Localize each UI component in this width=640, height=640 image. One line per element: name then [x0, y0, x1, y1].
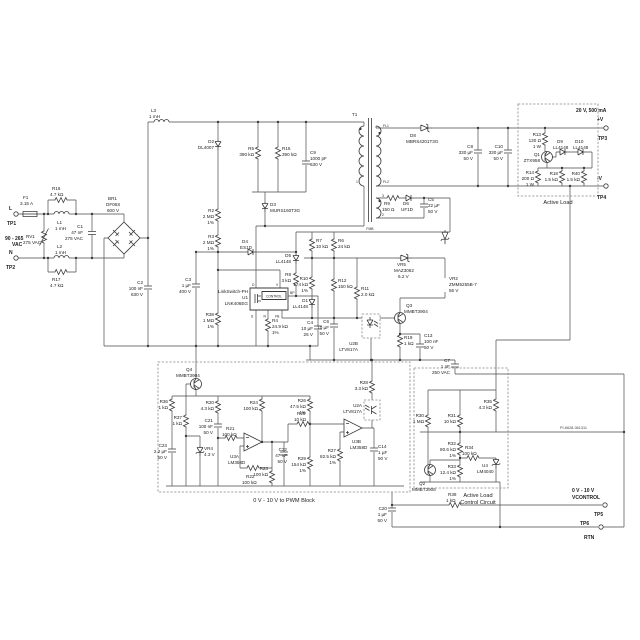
label-d10-ref: D10 [575, 139, 584, 144]
label-c22-v1: 47 nF [275, 453, 287, 458]
label-r17-v1: 4.7 kΩ [50, 283, 64, 288]
label-r14-ref: R14 [526, 170, 535, 175]
label-q3-ref: Q3 [406, 303, 413, 308]
label-c21-v1: 100 nF [199, 424, 213, 429]
label-d1-ref: D1 [302, 298, 308, 303]
label-u3b-v1: LM358D [350, 445, 368, 450]
label-line: L [9, 206, 12, 212]
label-r24-ref: R24 [250, 400, 259, 405]
label-c21-ref: C21 [205, 418, 214, 423]
label-r16-ref: R16 [52, 186, 61, 191]
label-d6-ref: D6 [403, 201, 409, 206]
label-r23-v1: 100 kΩ [253, 472, 268, 477]
label-c20-v1: 1 µF [378, 512, 387, 517]
label-c4-ref: C4 [307, 320, 313, 325]
label-d5-v1: LL4148 [276, 259, 292, 264]
label-d5-ref: D5 [285, 253, 291, 258]
label-active-load: Active Load [543, 200, 572, 206]
testpoint-tp4 [604, 184, 608, 188]
label-u3a-ref: U3A [230, 454, 240, 459]
label-r36-v1: 1 kΩ [158, 405, 168, 410]
label-r17-ref: R17 [52, 277, 61, 282]
label-r40-ref: R40 [572, 171, 581, 176]
label-q4-v1: MMBT3904 [176, 373, 200, 378]
label-c2-v2: 630 V [131, 292, 144, 297]
label-u1-control: CONTROL [266, 295, 282, 299]
label-r2-v1: 2 MΩ [203, 214, 215, 219]
label-r32-v1: 80.6 kΩ [440, 447, 457, 452]
label-vr4-ref: VR4 [204, 446, 213, 451]
label-l3-v1: 1 mH [149, 114, 160, 119]
label-c20-ref: C20 [379, 506, 388, 511]
label-r2-v2: 1% [207, 220, 214, 225]
label-r20-ref: R20 [206, 400, 215, 405]
label-u2a-v1: LTV817A [343, 409, 363, 414]
label-c1-ref: C1 [77, 224, 83, 229]
label-neutral: N [9, 250, 13, 256]
label-l2-v1: 1 mH [55, 250, 66, 255]
label-d8-ref: D8 [410, 133, 416, 138]
label-c10-ref: C10 [495, 144, 504, 149]
label-c1-v1: 47 nF [71, 230, 83, 235]
label-u1-brand: LinkSwitch-PH [218, 289, 248, 294]
label-c8-v1: 330 µF [459, 150, 474, 155]
label-r8-ref: R8 [285, 272, 291, 277]
label-c8-ref: C8 [467, 144, 473, 149]
label-u3b-ref: U3B [352, 439, 361, 444]
label-r25-v1: 10 kΩ [294, 417, 307, 422]
label-r22-v1: 100 kΩ [242, 480, 257, 485]
label-u4-v1: LM4040 [477, 469, 494, 474]
label-r26-v1: 47.5 kΩ [290, 404, 307, 409]
label-r14-v2: 1 W [526, 182, 535, 187]
label-d2-ref: D2 [208, 139, 214, 144]
label-doc-number: PI-6628-061311 [560, 426, 587, 430]
label-c23-v1: 2.2 µF [154, 449, 167, 454]
label-c5-v1: 22 µF [428, 203, 440, 208]
testpoint-tp6 [599, 525, 603, 529]
label-t1-fmb: FMB [366, 227, 374, 231]
label-tp4: TP4 [597, 195, 606, 201]
label-r26-ref: R26 [298, 398, 307, 403]
label-r21-v1: 100 kΩ [222, 432, 237, 437]
label-r29-v2: 1% [299, 468, 306, 473]
label-r27-v2: 1% [329, 460, 336, 465]
label-c14-v1: 1 µF [378, 450, 387, 455]
label-l3-ref: L3 [151, 108, 157, 113]
label-c22-v2: 50 V [278, 459, 288, 464]
label-r32-v2: 1% [449, 453, 456, 458]
label-q1-v1: ZTX958 [524, 158, 541, 163]
label-r7-ref: R7 [316, 238, 322, 243]
label-r36-ref: R36 [160, 399, 169, 404]
label-c20-v2: 50 V [378, 518, 388, 523]
label-c13-v1: 100 nF [424, 339, 438, 344]
testpoint-tp5 [603, 503, 607, 507]
label-d8-v1: MBRS4201T3G [406, 139, 439, 144]
label-d6-v1: UF1D [401, 207, 414, 212]
testpoint-tp2 [14, 256, 18, 260]
label-d4-ref: D4 [242, 239, 248, 244]
label-r33-ref: R33 [448, 464, 457, 469]
label-r3-v2: 1% [207, 246, 214, 251]
label-c9-v1: 1000 pF [310, 156, 327, 161]
label-r29-v1: 154 kΩ [291, 462, 306, 467]
label-l1-v1: 1 mH [55, 226, 66, 231]
label-r39-ref: R39 [448, 492, 457, 497]
schematic-page: L TP1 N TP2 90 - 265 VAC F1 3.15 A RV1 2… [0, 0, 640, 640]
label-alcc-2: Control Circuit [460, 500, 496, 506]
label-rv1-ref: RV1 [26, 234, 35, 239]
label-c6-v2: 50 V [320, 331, 330, 336]
label-r10-v1: 174 kΩ [293, 282, 308, 287]
label-c21-v2: 50 V [204, 430, 214, 435]
label-c6-v1: 10 µF [317, 325, 329, 330]
label-out-rating: 20 V, 500 mA [576, 108, 607, 114]
label-r33-v1: 12.4 kΩ [440, 470, 457, 475]
label-br1-v1: DF06S [106, 202, 120, 207]
label-rv1-v1: 275 VAC [23, 240, 42, 245]
label-r4-ref: R4 [272, 318, 278, 323]
label-d9-ref: D9 [557, 139, 563, 144]
label-c5-v2: 50 V [428, 209, 438, 214]
label-c7-v2: 250 VAC [432, 370, 451, 375]
label-c3-ref: C3 [185, 277, 191, 282]
label-vr5-v2: 6.2 V [398, 274, 410, 279]
label-f1-ref: F1 [23, 195, 29, 200]
label-out-neg: -V [597, 176, 603, 182]
label-vr5-v1: MAZ3062 [394, 268, 414, 273]
label-ctrl-range: 0 V - 10 V [572, 488, 595, 494]
label-r3-v1: 2 MΩ [203, 240, 215, 245]
label-r24-v1: 100 kΩ [243, 406, 258, 411]
label-r19-ref: R19 [404, 335, 413, 340]
label-u1-pin-bp: BP [290, 291, 295, 295]
label-c4-v1: 10 µF [301, 326, 313, 331]
testpoint-tp3 [604, 126, 608, 130]
label-u3a-v1: LM358D [228, 460, 246, 465]
label-tp3: TP3 [598, 136, 607, 142]
label-r5-ref: R5 [248, 146, 254, 151]
label-tp6: TP6 [580, 521, 589, 527]
label-r4-v2: 1% [272, 330, 279, 335]
label-r9-v1: 150 Ω [382, 207, 395, 212]
label-r15-v1: 390 kΩ [282, 152, 297, 157]
label-u1-ref: U1 [242, 295, 248, 300]
label-u2b-v1: LTV817A [339, 347, 359, 352]
label-r38-ref: R38 [206, 312, 215, 317]
label-d9-v1: LL4148 [553, 145, 569, 150]
label-r30-v1: 1 MΩ [413, 419, 425, 424]
label-t1-p3: 3 [382, 194, 384, 198]
label-r3-ref: R3 [208, 234, 214, 239]
label-d1-v1: LL4148 [293, 304, 309, 309]
label-tp5: TP5 [594, 512, 603, 518]
label-r20-v1: 4.3 kΩ [201, 406, 215, 411]
label-r35-ref: R35 [484, 399, 493, 404]
label-vr2-ref: VR2 [449, 276, 458, 281]
label-u2b-ref: U2B [349, 341, 358, 346]
label-c6-ref: C6 [323, 319, 329, 324]
label-q3-v1: MMBT3904 [404, 309, 428, 314]
label-q4-ref: Q4 [186, 367, 193, 372]
label-r38-v2: 1% [207, 324, 214, 329]
label-c3-v1: 1 µF [182, 283, 191, 288]
label-r34-ref: R34 [465, 445, 474, 450]
label-q2-ref: Q2 [419, 481, 426, 486]
label-r7-v1: 10 kΩ [316, 244, 329, 249]
label-t1-fl1: FL1 [383, 124, 389, 128]
label-c7-ref: C7 [444, 358, 450, 363]
label-r13-ref: R13 [533, 132, 542, 137]
label-d3-ref: D3 [270, 202, 276, 207]
label-d10-v1: LL4148 [573, 145, 589, 150]
label-vr2-v2: 56 V [449, 288, 459, 293]
label-c10-v1: 330 µF [489, 150, 504, 155]
label-r13-v1: 130 Ω [529, 138, 542, 143]
label-c23-ref: C23 [159, 443, 168, 448]
label-c8-v2: 50 V [464, 156, 474, 161]
label-r12-v1: 150 kΩ [338, 284, 353, 289]
label-r14-v1: 200 Ω [522, 176, 535, 181]
label-r27-ref: R27 [328, 448, 337, 453]
label-rtn: RTN [584, 535, 595, 541]
label-r10-v2: 1% [301, 288, 308, 293]
label-c9-ref: C9 [310, 150, 316, 155]
label-c3-v2: 400 V [179, 289, 192, 294]
label-l2-ref: L2 [57, 244, 63, 249]
label-r35-v1: 4.3 kΩ [479, 405, 493, 410]
label-r4-v1: 24.9 kΩ [272, 324, 289, 329]
label-br1-v2: 600 V [107, 208, 120, 213]
label-r34-v1: 100 kΩ [462, 451, 477, 456]
label-c1-v2: 275 VAC [65, 236, 84, 241]
label-c13-ref: C13 [424, 333, 433, 338]
label-c2-ref: C2 [137, 280, 143, 285]
label-vr4-v1: 4.3 V [204, 452, 216, 457]
label-d4-v1: ES1D [240, 245, 253, 250]
label-r19-v1: 1 kΩ [404, 341, 414, 346]
label-r5-v1: 390 kΩ [239, 152, 254, 157]
label-tp1: TP1 [7, 221, 16, 227]
label-c5-ref: C5 [428, 197, 434, 202]
label-r37-ref: R37 [174, 415, 183, 420]
label-u1-part: LNK406EG [225, 301, 249, 306]
label-q1-ref: Q1 [534, 152, 541, 157]
label-r18-ref: R18 [550, 171, 559, 176]
label-r21-ref: R21 [226, 426, 235, 431]
label-r16-v1: 4.7 kΩ [50, 192, 64, 197]
label-r11-ref: R11 [361, 286, 370, 291]
label-r29-ref: R29 [298, 456, 307, 461]
label-vr5-ref: VR5 [397, 262, 406, 267]
label-tp2: TP2 [6, 265, 15, 271]
label-d2-v1: DL4007 [198, 145, 215, 150]
schematic-canvas: L TP1 N TP2 90 - 265 VAC F1 3.15 A RV1 2… [0, 0, 640, 640]
label-t1-fl2: FL2 [383, 180, 389, 184]
label-c7-v1: 1 nF [441, 364, 450, 369]
label-u2a-ref: U2A [353, 403, 363, 408]
label-r39-v1: 1 kΩ [446, 498, 456, 503]
label-c23-v2: 50 V [158, 455, 168, 460]
label-r23-ref: R23 [260, 466, 269, 471]
label-r12-ref: R12 [338, 278, 347, 283]
label-c13-v2: 50 V [424, 345, 434, 350]
label-r11-v1: 2.0 kΩ [361, 292, 375, 297]
label-ctrl-name: VCONTROL [572, 495, 600, 501]
label-f1-v1: 3.15 A [20, 201, 34, 206]
label-r13-v2: 1 W [533, 144, 542, 149]
label-input-range-2: VAC [12, 242, 23, 248]
label-t1-p2: 2 [382, 213, 384, 217]
label-l1-ref: L1 [57, 220, 63, 225]
label-c14-ref: C14 [378, 444, 387, 449]
label-c9-v2: 630 V [310, 162, 323, 167]
label-r15-ref: R15 [282, 146, 291, 151]
label-r37-v1: 1 kΩ [172, 421, 182, 426]
label-c14-v2: 50 V [378, 456, 388, 461]
label-r32-ref: R32 [448, 441, 457, 446]
label-c4-v2: 25 V [304, 332, 314, 337]
label-q2-v1: MMBT3906 [412, 487, 436, 492]
label-r31-ref: R31 [448, 413, 457, 418]
label-r28-v1: 3.3 kΩ [355, 386, 369, 391]
label-r18-v1: 1.5 kΩ [545, 177, 559, 182]
label-r30-ref: R30 [416, 413, 425, 418]
label-alcc-1: Active Load [463, 493, 492, 499]
label-r27-v1: 82.5 kΩ [320, 454, 337, 459]
label-u4-ref: U4 [482, 463, 488, 468]
testpoint-tp1 [14, 212, 18, 216]
background [0, 0, 640, 640]
label-out-pos: +V [597, 117, 604, 123]
label-r6-ref: R6 [338, 238, 344, 243]
label-vr2-v1: ZMM5255B-7 [449, 282, 477, 287]
label-t1-ref: T1 [352, 112, 358, 117]
label-r25-ref: R25 [297, 411, 306, 416]
label-r10-ref: R10 [300, 276, 309, 281]
label-r6-v1: 24 kΩ [338, 244, 351, 249]
label-r38-v1: 1 MΩ [203, 318, 215, 323]
label-r31-v1: 10 kΩ [444, 419, 457, 424]
label-c10-v2: 50 V [494, 156, 504, 161]
label-br1-ref: BR1 [108, 196, 117, 201]
label-c2-v1: 100 nF [129, 286, 143, 291]
label-c22-ref: C22 [279, 447, 288, 452]
label-r28-ref: R28 [360, 380, 369, 385]
label-r33-v2: 1% [449, 476, 456, 481]
label-r9-ref: R9 [384, 201, 390, 206]
label-u1-pin-fb: FB [275, 315, 280, 319]
label-r2-ref: R2 [208, 208, 214, 213]
label-r40-v1: 1.5 kΩ [567, 177, 581, 182]
label-t1-p1: 1 [356, 180, 358, 184]
label-d3-v1: MURS160T3G [270, 208, 301, 213]
label-pwm-block: 0 V - 10 V to PWM Block [253, 498, 315, 504]
label-r8-v1: 3 kΩ [281, 278, 291, 283]
